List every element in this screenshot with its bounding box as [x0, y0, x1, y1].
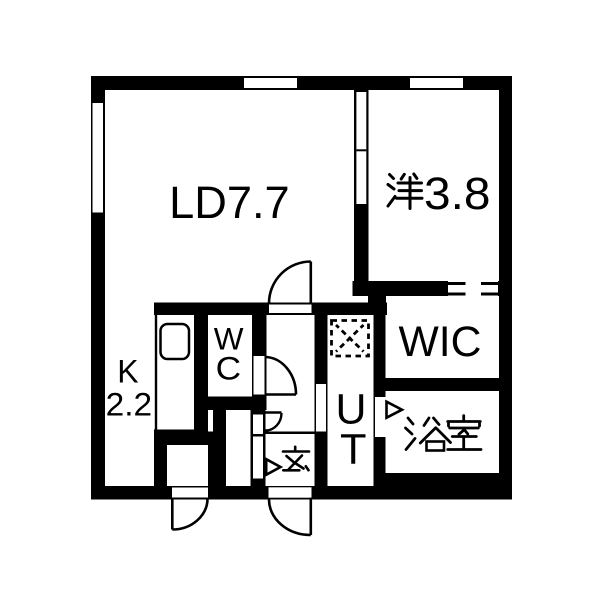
- svg-text:WIC: WIC: [399, 319, 482, 366]
- svg-text:K: K: [117, 354, 138, 390]
- svg-text:2.2: 2.2: [106, 386, 153, 422]
- svg-text:T: T: [340, 425, 367, 473]
- svg-text:3.8: 3.8: [424, 168, 491, 219]
- svg-text:C: C: [216, 350, 242, 386]
- svg-text:LD7.7: LD7.7: [169, 177, 290, 228]
